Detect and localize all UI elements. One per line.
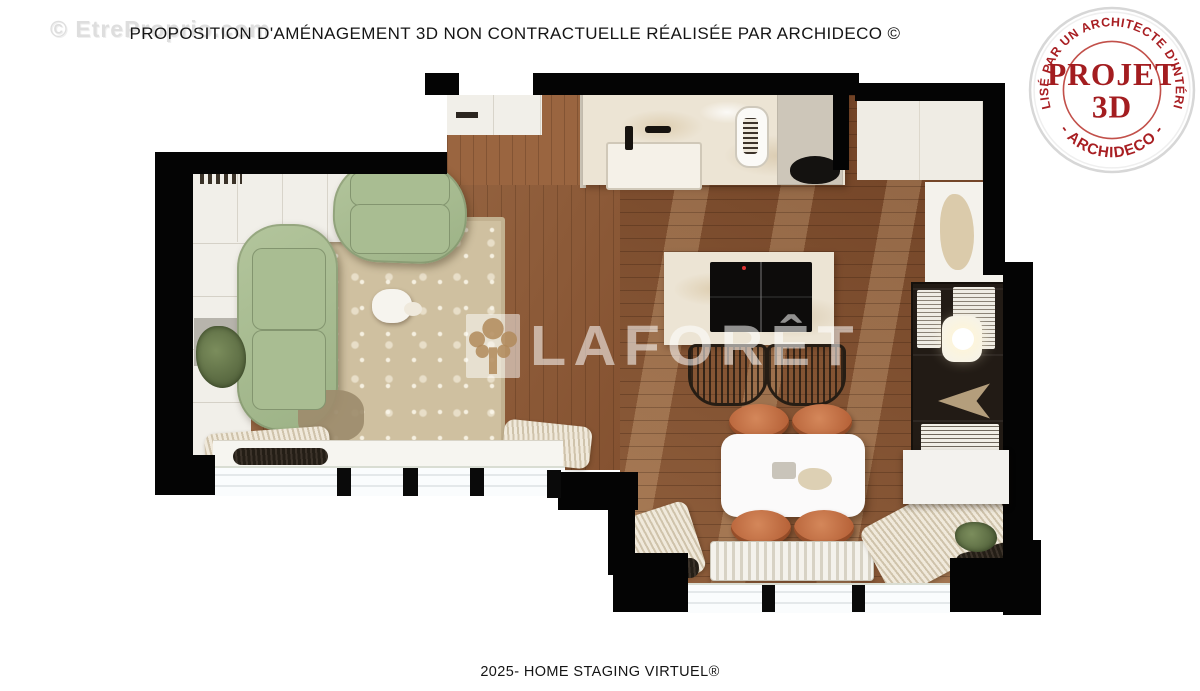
radiator: [710, 541, 874, 581]
curtain-tieback: [233, 448, 328, 465]
stamp-center-line2: 3D: [1092, 89, 1132, 124]
kitchen-sink: [606, 142, 702, 190]
window-mullion: [762, 585, 775, 612]
shelf-plant: [955, 522, 997, 552]
window-mullion: [470, 468, 484, 496]
floorplan-3d-render: LAFORÊT: [0, 0, 1200, 691]
stamp-center-line1: PROJET: [1047, 57, 1177, 92]
table-flowers: [798, 468, 832, 490]
window: [683, 583, 955, 613]
wall: [155, 152, 193, 495]
window-mullion: [547, 470, 561, 498]
lamp-glow: [952, 328, 974, 350]
potted-plant: [196, 326, 246, 388]
faucet-arm: [645, 126, 671, 133]
wall: [950, 558, 1040, 612]
wall: [155, 152, 447, 174]
armchair-back-cushion: [350, 172, 450, 206]
table-decor: [404, 302, 422, 316]
table-centerpiece: [772, 462, 796, 479]
footer-caption: 2025- HOME STAGING VIRTUEL®: [0, 664, 1200, 680]
laforet-watermark-text: LAFORÊT: [530, 314, 842, 380]
projet-3d-stamp: RÉALISÉ PAR UN ARCHITECTE D'INTÉRIEUR - …: [1026, 4, 1198, 176]
window: [213, 466, 565, 496]
tree-icon: [466, 314, 520, 378]
page-title: PROPOSITION D'AMÉNAGEMENT 3D NON CONTRAC…: [0, 24, 1030, 44]
wall: [155, 455, 215, 495]
armchair-seat-cushion: [350, 204, 450, 254]
window-mullion: [852, 585, 865, 612]
coffee-machine-grille: [743, 118, 758, 154]
shelf-drawer: [903, 450, 1009, 504]
window-mullion: [337, 468, 351, 496]
sofa-cushion: [252, 330, 326, 410]
wall: [425, 73, 459, 95]
wall: [613, 553, 688, 612]
wall: [833, 78, 849, 170]
sofa-cushion: [252, 248, 326, 330]
hall-closet: [857, 98, 983, 180]
laforet-logo-box: [466, 314, 520, 378]
wall: [983, 83, 1005, 275]
window-mullion: [403, 468, 418, 496]
wall: [1003, 262, 1033, 562]
book-stack: [917, 290, 941, 348]
cooktop-indicator: [742, 266, 746, 270]
closet-handle: [456, 112, 478, 118]
faucet: [625, 126, 633, 150]
wall: [533, 73, 859, 95]
